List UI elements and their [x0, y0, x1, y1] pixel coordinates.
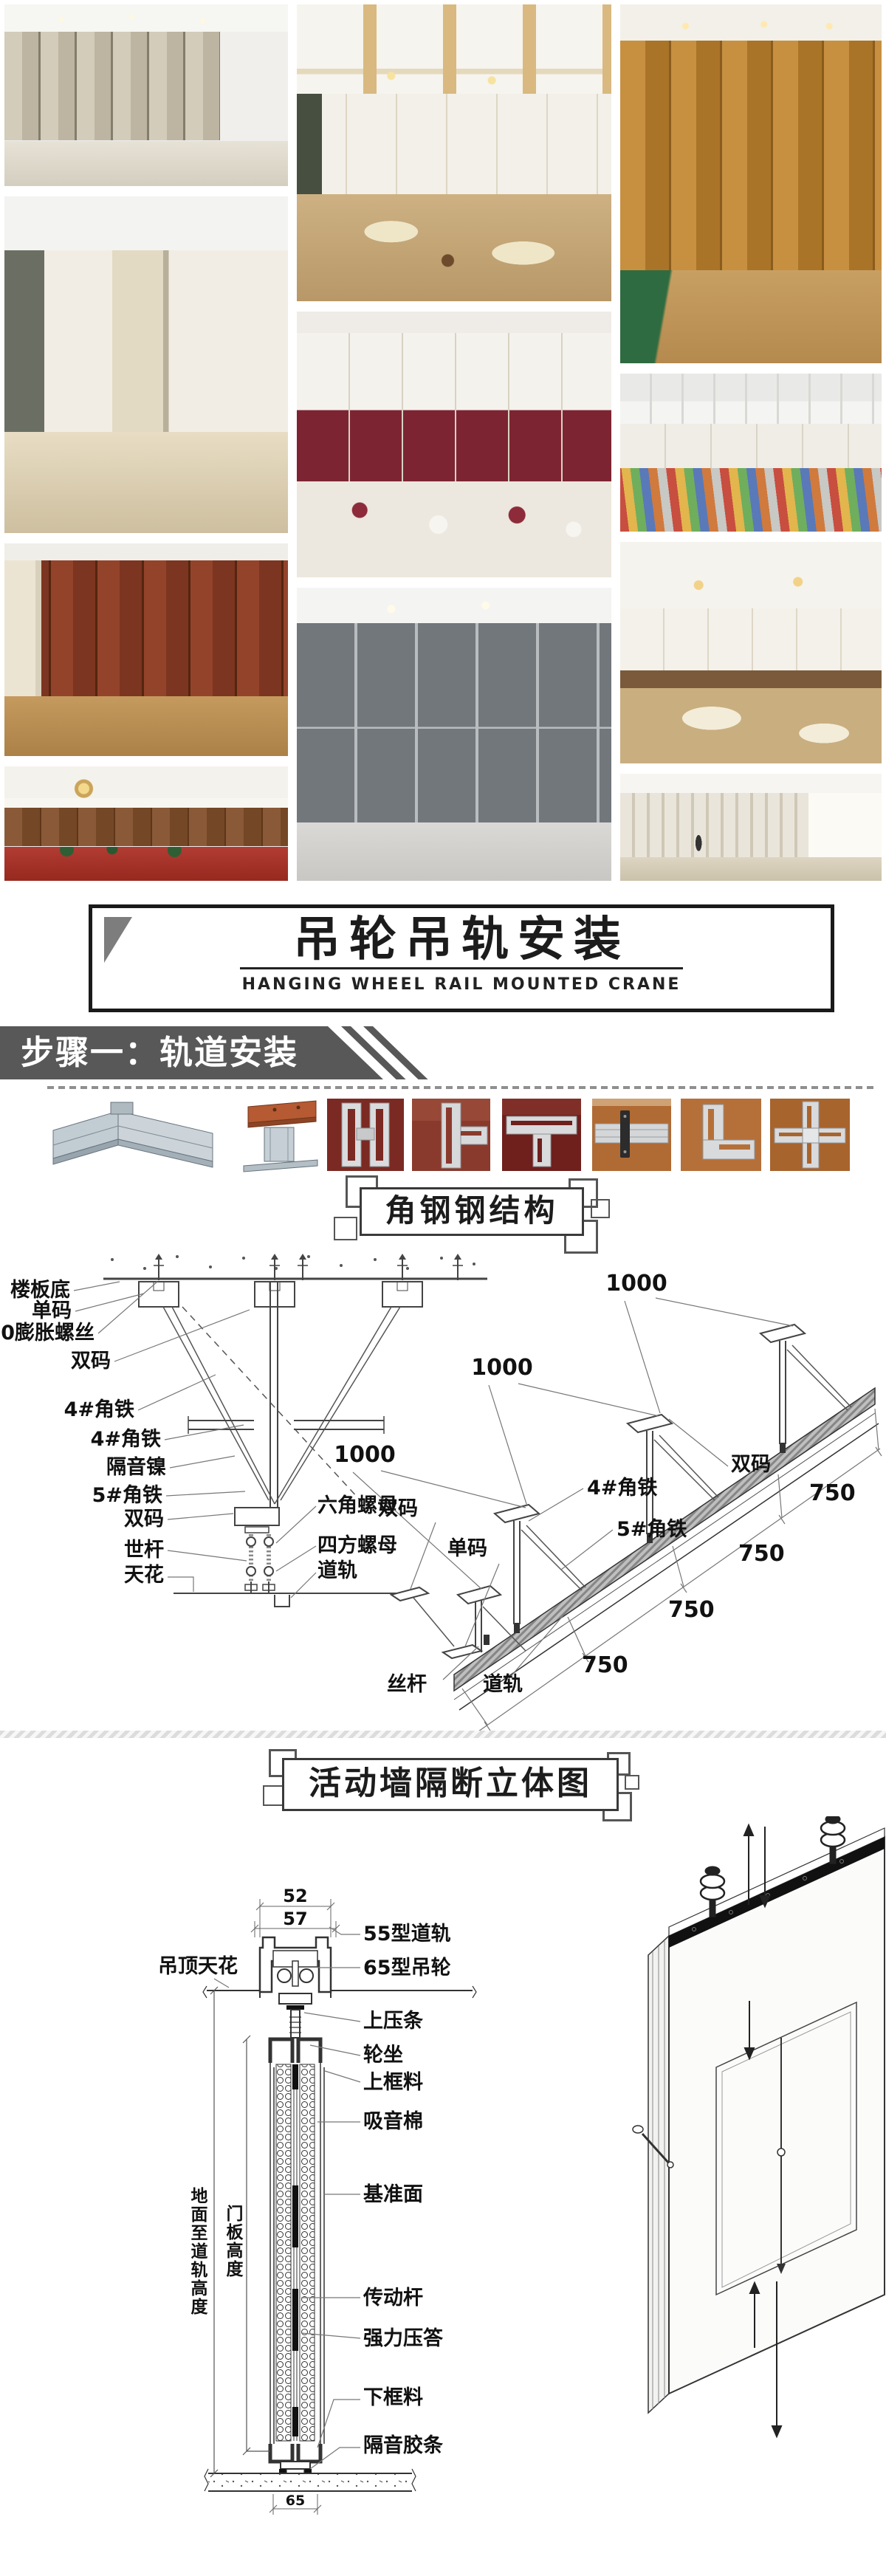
label-rail-55: 55型道轨 [363, 1922, 451, 1945]
angle-steel-diagram: 楼板底 单码 10膨胀螺丝 双码 4#角铁 4#角铁 隔音镍 5#角铁 双码 世… [0, 1248, 886, 1731]
dim-1000-a: 1000 [605, 1271, 667, 1296]
section-title-text: 角钢钢结构 [362, 1189, 582, 1232]
label-double-clip-2: 双码 [124, 1508, 164, 1531]
photo-banquet-hall-tables [620, 542, 882, 763]
label-angle-iron-5: 5#角铁 [92, 1483, 162, 1507]
render-track-t-junction [47, 1099, 219, 1175]
label-rod: 世杆 [124, 1539, 164, 1562]
label-square-nut: 四方螺母 [317, 1533, 397, 1557]
photo-track-cross-joint [770, 1099, 850, 1171]
label-strong-press: 强力压答 [363, 2326, 444, 2350]
photo-folding-partition-showroom [4, 4, 288, 186]
render-track-with-wood-plate [226, 1099, 328, 1175]
label-double-clip: 双码 [71, 1350, 111, 1373]
photo-track-h-joint [327, 1099, 404, 1171]
label-drive-rod: 传动杆 [363, 2287, 423, 2309]
diagonal-divider [0, 1731, 886, 1738]
label-iso-rail: 道轨 [483, 1672, 523, 1696]
photo-grey-partition-wall [297, 588, 611, 881]
dim-750-b: 750 [738, 1541, 785, 1567]
dotted-divider [47, 1086, 876, 1089]
photo-colorful-carpet-hall [620, 374, 882, 532]
label-suspended-ceiling: 吊顶天花 [158, 1955, 238, 1978]
label-iso-double-clip-b: 双码 [378, 1497, 418, 1520]
photo-corridor-stacked-panels [620, 774, 882, 881]
dim-750-d: 750 [582, 1652, 628, 1678]
label-wheel-65: 65型吊轮 [363, 1957, 451, 1979]
photo-track-corner-joint [412, 1099, 490, 1171]
main-title: 吊轮吊轨安装 [92, 914, 831, 966]
label-iso-screw-rod: 丝杆 [387, 1673, 427, 1696]
product-detail-page: 吊轮吊轨安装 HANGING WHEEL RAIL MOUNTED CRANE … [0, 0, 886, 2576]
dim-1000-b: 1000 [471, 1355, 533, 1381]
label-iso-double-clip-a: 双码 [731, 1453, 771, 1476]
label-rail: 道轨 [317, 1559, 357, 1582]
square-decor-icon [334, 1217, 357, 1240]
photo-redwood-partition-room [4, 543, 288, 756]
section-title-text: 活动墙隔断立体图 [284, 1760, 617, 1807]
label-top-frame: 上框料 [363, 2071, 423, 2094]
label-wheel-seat: 轮坐 [363, 2044, 403, 2067]
section-title-partition: 活动墙隔断立体图 [282, 1758, 619, 1811]
partition-section-diagram: 52 57 [0, 1816, 886, 2576]
dim-1000-c: 1000 [334, 1442, 396, 1468]
label-sound-cotton: 吸音棉 [363, 2109, 423, 2133]
label-angle-iron-4b: 4#角铁 [91, 1427, 161, 1451]
square-decor-icon [263, 1785, 284, 1806]
title-underline [240, 967, 683, 969]
label-angle-iron-4a: 4#角铁 [64, 1398, 134, 1421]
label-top-strip: 上压条 [363, 2010, 424, 2033]
dim-52: 52 [283, 1886, 307, 1906]
label-single-clip: 单码 [32, 1299, 72, 1322]
dim-57: 57 [283, 1909, 307, 1929]
photo-track-t-joint [502, 1099, 581, 1171]
label-iso-single-clip: 单码 [447, 1537, 487, 1560]
label-ceiling: 天花 [124, 1564, 164, 1587]
label-door-panel-height: 门板高度 [220, 2205, 245, 2286]
step-label: 步骤一：轨道安装 [0, 1026, 391, 1079]
photo-track-l-corner [681, 1099, 761, 1171]
label-floor-to-rail-height: 地面至道轨高度 [185, 2187, 210, 2320]
photo-dining-room-round-tables [297, 4, 611, 301]
label-iso-angle5: 5#角铁 [617, 1517, 687, 1541]
dim-750-a: 750 [809, 1480, 856, 1506]
label-bottom-frame: 下框料 [363, 2386, 423, 2409]
panel-3d-view [633, 1816, 885, 2436]
label-sound-rubber-seal: 隔音胶条 [363, 2434, 444, 2457]
section-title-angle-steel: 角钢钢结构 [360, 1187, 584, 1236]
photo-maroon-white-banquet-room [297, 312, 611, 577]
step-banner: 步骤一：轨道安装 [0, 1026, 391, 1079]
label-expansion-bolt: 10膨胀螺丝 [0, 1322, 95, 1344]
hanging-wheel-65 [273, 1951, 317, 2038]
dim-750-c: 750 [668, 1597, 715, 1623]
photo-golden-wood-partition-hall [620, 4, 882, 363]
photo-white-partition-hallway [4, 196, 288, 533]
label-floor-slab: 楼板底 [10, 1278, 70, 1302]
dim-65: 65 [286, 2493, 305, 2509]
triangle-decor-icon [104, 917, 132, 963]
label-datum-face: 基准面 [363, 2183, 423, 2206]
main-title-banner: 吊轮吊轨安装 HANGING WHEEL RAIL MOUNTED CRANE [89, 904, 834, 1012]
photo-banquet-hall-red-carpet [4, 766, 288, 881]
label-iso-angle4: 4#角铁 [587, 1476, 657, 1500]
label-sound-insulation: 隔音镍 [106, 1455, 166, 1479]
square-decor-icon [591, 1199, 610, 1218]
photo-track-splice-connector [592, 1099, 671, 1171]
main-subtitle: HANGING WHEEL RAIL MOUNTED CRANE [92, 975, 831, 994]
square-decor-icon [625, 1775, 639, 1790]
